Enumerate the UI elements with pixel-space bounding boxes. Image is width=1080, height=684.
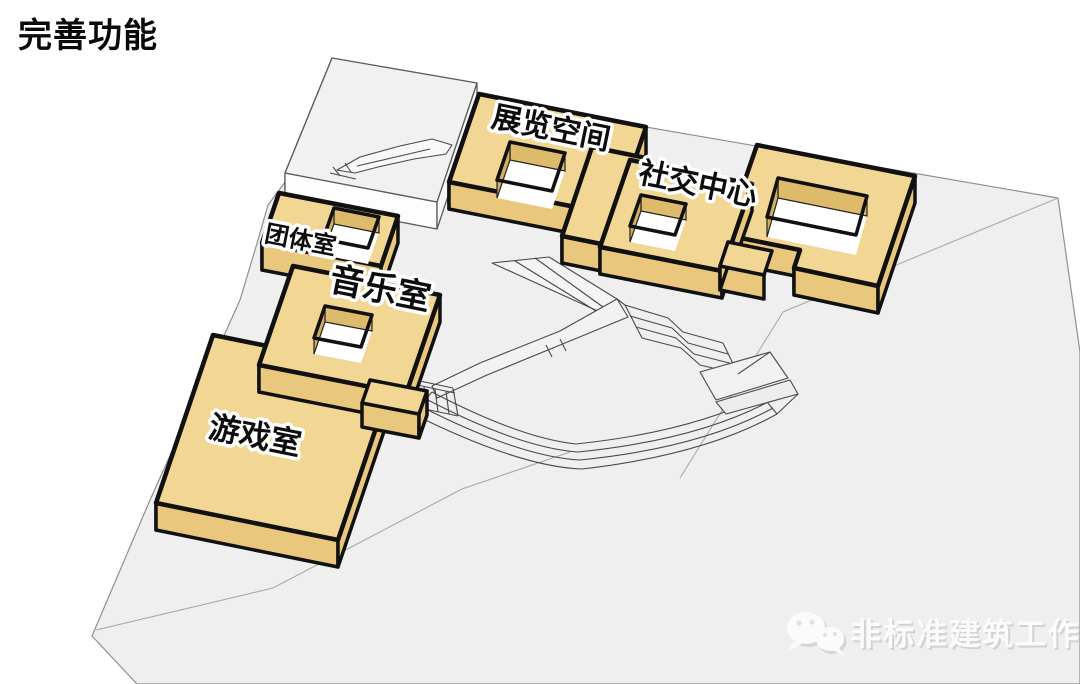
watermark-text: 非标准建筑工作室 <box>850 617 1080 652</box>
exhibition-courtyard <box>497 142 565 209</box>
block-music-step <box>362 380 427 438</box>
page-title: 完善功能 <box>18 16 158 55</box>
diagram-page: 展览空间 社交中心 团体室 音乐室 游戏室 完善功能 非标准建筑工作室 非标准建… <box>0 0 1080 684</box>
music-courtyard <box>314 306 372 363</box>
social-courtyard <box>630 195 686 251</box>
block-social-step <box>720 242 772 299</box>
site-diagram: 展览空间 社交中心 团体室 音乐室 游戏室 完善功能 非标准建筑工作室 非标准建… <box>0 0 1080 684</box>
